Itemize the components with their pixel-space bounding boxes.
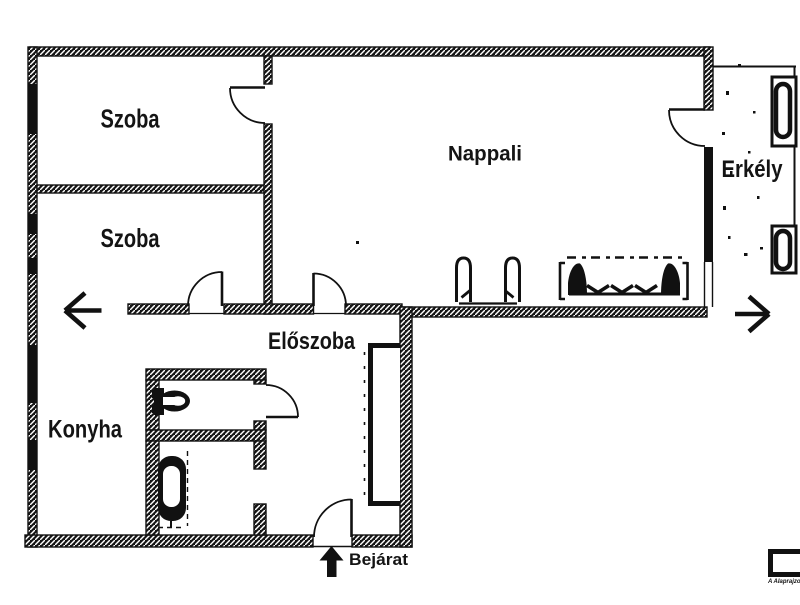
svg-text:Konyha: Konyha [48, 416, 123, 444]
svg-text:A Alaprajzoló: A Alaprajzoló [767, 579, 800, 585]
svg-text:Nappali: Nappali [448, 143, 522, 166]
svg-text:Bejárat: Bejárat [349, 550, 408, 569]
svg-text:Erkély: Erkély [722, 156, 784, 183]
svg-text:Szoba: Szoba [101, 223, 160, 253]
svg-text:Szoba: Szoba [101, 103, 160, 133]
svg-text:Előszoba: Előszoba [268, 328, 356, 355]
